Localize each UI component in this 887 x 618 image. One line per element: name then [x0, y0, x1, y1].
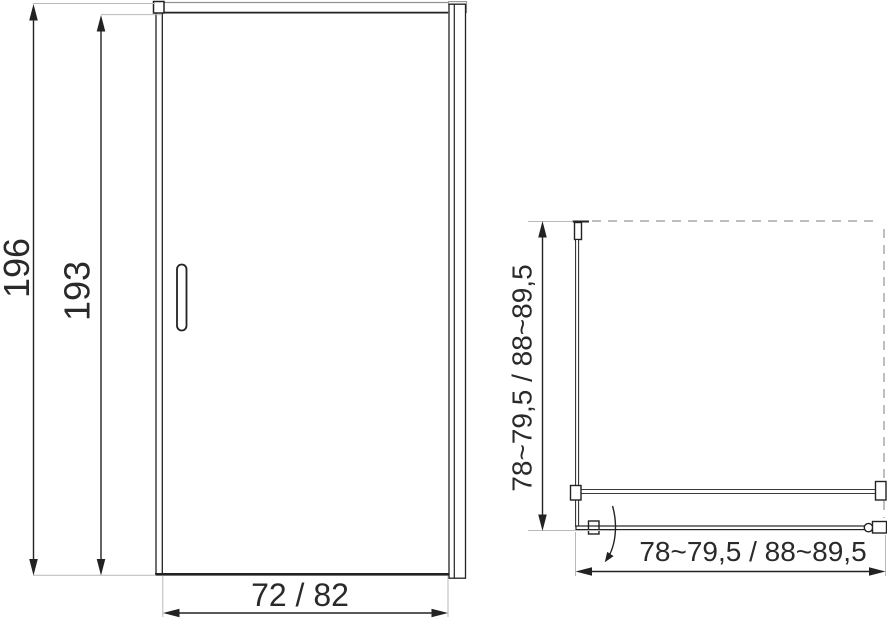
technical-drawing-canvas: 196 193 72 / 82	[0, 0, 887, 618]
support-bar	[581, 490, 876, 494]
support-bar-right-block	[876, 482, 887, 501]
arrowhead-left-icon	[163, 609, 180, 618]
top-rail	[156, 3, 467, 13]
label-total-height: 196	[0, 238, 37, 298]
wall-bracket	[575, 223, 582, 240]
dimension-plan-width: 78~79,5 / 88~89,5	[576, 532, 886, 576]
arrowhead-down-icon	[97, 559, 106, 576]
top-rail-left-cap	[154, 2, 165, 14]
arrowhead-left-icon	[576, 567, 593, 576]
arrowhead-right-icon	[869, 567, 886, 576]
side-glass-panel	[576, 240, 579, 527]
swing-arrowhead-icon	[605, 552, 614, 562]
label-plan-depth: 78~79,5 / 88~89,5	[507, 264, 538, 491]
label-door-height: 193	[57, 261, 98, 321]
right-wall-profile	[449, 4, 466, 578]
arrowhead-up-icon	[538, 221, 547, 238]
support-bar-left-block	[571, 486, 582, 501]
dimension-door-height: 193	[57, 15, 163, 576]
arrowhead-up-icon	[97, 15, 106, 32]
arrowhead-down-icon	[538, 515, 547, 532]
door-leaf-plan	[576, 526, 865, 530]
door-swing-arc	[607, 506, 615, 559]
arrowhead-down-icon	[29, 559, 38, 576]
front-view: 196 193 72 / 82	[0, 2, 467, 618]
dimension-door-width: 72 / 82	[163, 576, 448, 617]
label-door-width: 72 / 82	[251, 577, 349, 613]
door-handle	[177, 265, 187, 331]
closing-wall-profile	[873, 522, 887, 534]
arrowhead-up-icon	[29, 4, 38, 21]
dimension-plan-depth: 78~79,5 / 88~89,5	[507, 221, 615, 531]
label-plan-width: 78~79,5 / 88~89,5	[639, 536, 866, 567]
plan-view: 78~79,5 / 88~89,5 78~79,5 / 88~89,5	[507, 221, 887, 576]
drawing-svg: 196 193 72 / 82	[0, 0, 887, 618]
arrowhead-right-icon	[432, 609, 449, 618]
door-knob	[864, 523, 872, 531]
